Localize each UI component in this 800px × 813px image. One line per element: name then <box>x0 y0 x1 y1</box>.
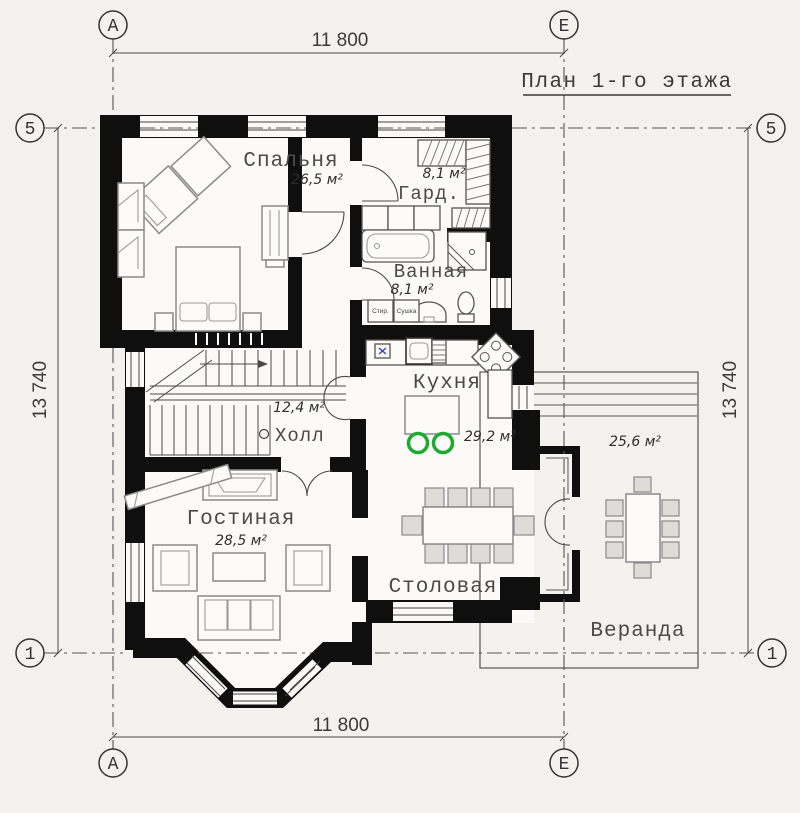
axis-label: Е <box>559 17 570 37</box>
bathroom-name: Ванная <box>394 261 468 283</box>
washer-label: Стир. <box>372 308 389 315</box>
dining-name: Столовая <box>389 576 498 599</box>
axis-marker-e-top: Е <box>550 11 578 39</box>
window-right-kitchen <box>513 386 533 409</box>
dimension-bottom: 11 800 <box>109 715 568 741</box>
bedroom-wardrobe-cabinet <box>118 183 144 277</box>
dining-table <box>423 507 513 544</box>
axis-label: А <box>108 17 119 37</box>
veranda-area: 25,6 м² <box>609 434 661 450</box>
kitchen-sink <box>406 338 446 364</box>
axis-label: 5 <box>25 120 36 140</box>
washer: Стир. <box>368 300 393 322</box>
axis-label: 1 <box>25 645 36 665</box>
axis-marker-a-bottom: А <box>99 749 127 777</box>
kitchen-area: 29,2 м² <box>464 429 516 445</box>
dimension-top: 11 800 <box>109 30 568 57</box>
dimension-left: 13 740 <box>30 124 62 657</box>
hall-name: Холл <box>275 425 325 447</box>
living-area: 28,5 м² <box>215 533 267 549</box>
kitchen-name: Кухня <box>413 372 481 395</box>
axis-marker-a-top: А <box>99 11 127 39</box>
window-top-2 <box>248 116 306 137</box>
axis-marker-1-left: 1 <box>16 639 44 667</box>
veranda-french-door <box>545 499 570 545</box>
window-dining-bottom <box>393 602 453 621</box>
axis-label: 5 <box>766 120 777 140</box>
kitchen-counter-right <box>488 370 512 418</box>
plan-title-text: План 1-го этажа <box>521 71 733 94</box>
bathroom-area: 8,1 м² <box>391 282 434 298</box>
axis-marker-e-bottom: Е <box>550 749 578 777</box>
dim-top-value: 11 800 <box>312 30 369 51</box>
window-left-living <box>126 543 144 602</box>
window-left-hall <box>126 352 144 387</box>
toilet <box>458 292 474 322</box>
axis-label: А <box>108 755 119 775</box>
bedroom-name: Спальня <box>243 150 338 173</box>
dishwasher-marker <box>375 344 390 358</box>
bedroom-area: 26,5 м² <box>291 172 343 188</box>
dim-bottom-value: 11 800 <box>313 715 370 736</box>
dim-left-value: 13 740 <box>30 361 51 419</box>
kitchen-island <box>405 396 459 434</box>
dining-veranda-frames <box>538 450 576 598</box>
axis-label: Е <box>559 755 570 775</box>
window-top-1 <box>140 116 198 137</box>
living-name: Гостиная <box>187 508 296 531</box>
floor-plan-drawing: Стир. Сушка <box>0 0 800 813</box>
dryer-label: Сушка <box>397 308 417 315</box>
veranda-deck-steps <box>534 383 697 416</box>
axis-marker-1-right: 1 <box>758 639 786 667</box>
bathtub <box>362 230 434 262</box>
armchair-2 <box>286 545 330 591</box>
floor-plan-page: Стир. Сушка <box>0 0 800 813</box>
tv-dresser <box>262 206 288 267</box>
veranda-furniture <box>606 477 679 578</box>
window-top-3 <box>378 116 445 137</box>
axis-marker-5-left: 5 <box>16 114 44 142</box>
coffee-table <box>213 553 265 581</box>
bar-stool-1 <box>409 434 428 453</box>
axis-marker-5-right: 5 <box>757 114 785 142</box>
axis-label: 1 <box>767 645 778 665</box>
wardrobe-name: Гард. <box>398 183 460 205</box>
dimension-right: 13 740 <box>720 124 752 657</box>
bar-stool-2 <box>434 434 453 453</box>
dim-right-value: 13 740 <box>720 361 741 419</box>
veranda-table <box>626 494 660 562</box>
dryer: Сушка <box>394 300 419 322</box>
window-right-bathroom <box>491 278 511 308</box>
hall-area: 12,4 м² <box>273 400 325 416</box>
veranda-name: Веранда <box>590 620 685 643</box>
armchair-1 <box>153 545 197 591</box>
sofa <box>198 596 280 640</box>
wardrobe-area: 8,1 м² <box>423 166 466 182</box>
plan-title: План 1-го этажа <box>521 71 733 95</box>
